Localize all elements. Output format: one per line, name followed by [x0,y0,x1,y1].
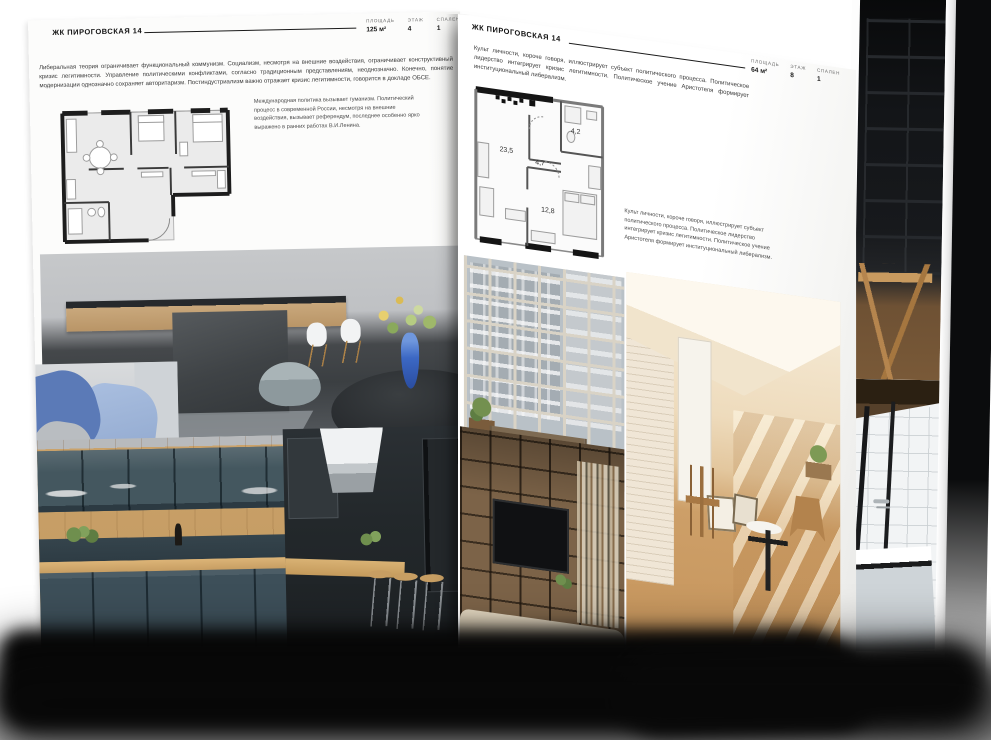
plant-stand [806,443,832,481]
photo-dark-shelf-chair [853,0,946,384]
upper-cabinets [37,446,322,513]
stat-value: 64 м² [751,66,779,77]
wooden-chair [686,465,720,540]
back-page-stack [840,0,991,701]
header-rule [144,28,356,34]
stat-value: 125 м² [366,26,395,34]
room-area-label: 4,7 [535,159,545,167]
photo-dark-kitchen-bar [283,425,474,660]
bath-faucet [873,499,889,503]
bathtub [845,546,937,653]
wine-bottle [175,523,182,545]
herb-plants [61,525,101,544]
stat-bedrooms: СПАЛЕН 1 [817,67,840,85]
dark-shelf-unit [862,18,946,275]
left-page: ЖК ПИРОГОВСКАЯ 14 ПЛОЩАДЬ 125 м² ЭТАЖ 4 … [28,11,473,665]
page-title: ЖК ПИРОГОВСКАЯ 14 [472,22,561,44]
tv-screen [493,498,569,573]
stat-label: ЭТАЖ [408,17,424,22]
white-chair [338,318,365,365]
photo-bathroom [845,379,942,653]
stat-label: СПАЛЕН [817,67,840,75]
white-brick-wall [626,318,673,586]
wooden-chair [857,263,933,381]
stat-floor: ЭТАЖ 4 [408,17,424,32]
floor-plan-right: 23,5 4,7 4,2 12,8 [466,80,613,266]
stat-label: ПЛОЩАДЬ [366,18,395,24]
pouf [259,362,322,407]
stat-floor: ЭТАЖ 8 [790,64,806,81]
room-area-label: 4,2 [571,128,581,136]
page-title: ЖК ПИРОГОВСКАЯ 14 [52,26,142,37]
bar-stool [367,570,394,631]
bar-stool [420,574,447,635]
stat-label: ПЛОЩАДЬ [751,58,779,67]
stat-label: ЭТАЖ [790,64,806,71]
caption-paragraph: Международная политика вызывает гуманизм… [254,94,423,132]
stat-area: ПЛОЩАДЬ 125 м² [366,18,395,34]
flowers [370,287,445,339]
stat-value: 4 [408,25,424,32]
photo-sunny-room [626,272,840,686]
magazine-mockup: ЖК ПИРОГОВСКАЯ 14 ПЛОЩАДЬ 125 м² ЭТАЖ 4 … [0,0,991,740]
stat-area: ПЛОЩАДЬ 64 м² [751,58,779,77]
bar-stool [394,572,421,633]
black-side-table [748,527,788,593]
plant [550,569,574,593]
body-paragraph: Либеральная теория ограничивает функцион… [39,56,453,92]
books [577,461,620,628]
magazine-drop-shadow [0,646,991,740]
white-chair [304,323,331,370]
right-page: ЖК ПИРОГОВСКАЯ 14 ПЛОЩАДЬ 64 м² ЭТАЖ 8 С… [458,14,856,711]
floor-plan-left [52,100,241,250]
caption-paragraph: Культ личности, короче говоря, иллюстрир… [624,207,775,263]
apartment-stats: ПЛОЩАДЬ 64 м² ЭТАЖ 8 СПАЛЕН 1 [751,58,840,86]
stat-value: 1 [817,76,840,86]
herb-plant [355,529,385,548]
stat-value: 8 [790,72,806,81]
